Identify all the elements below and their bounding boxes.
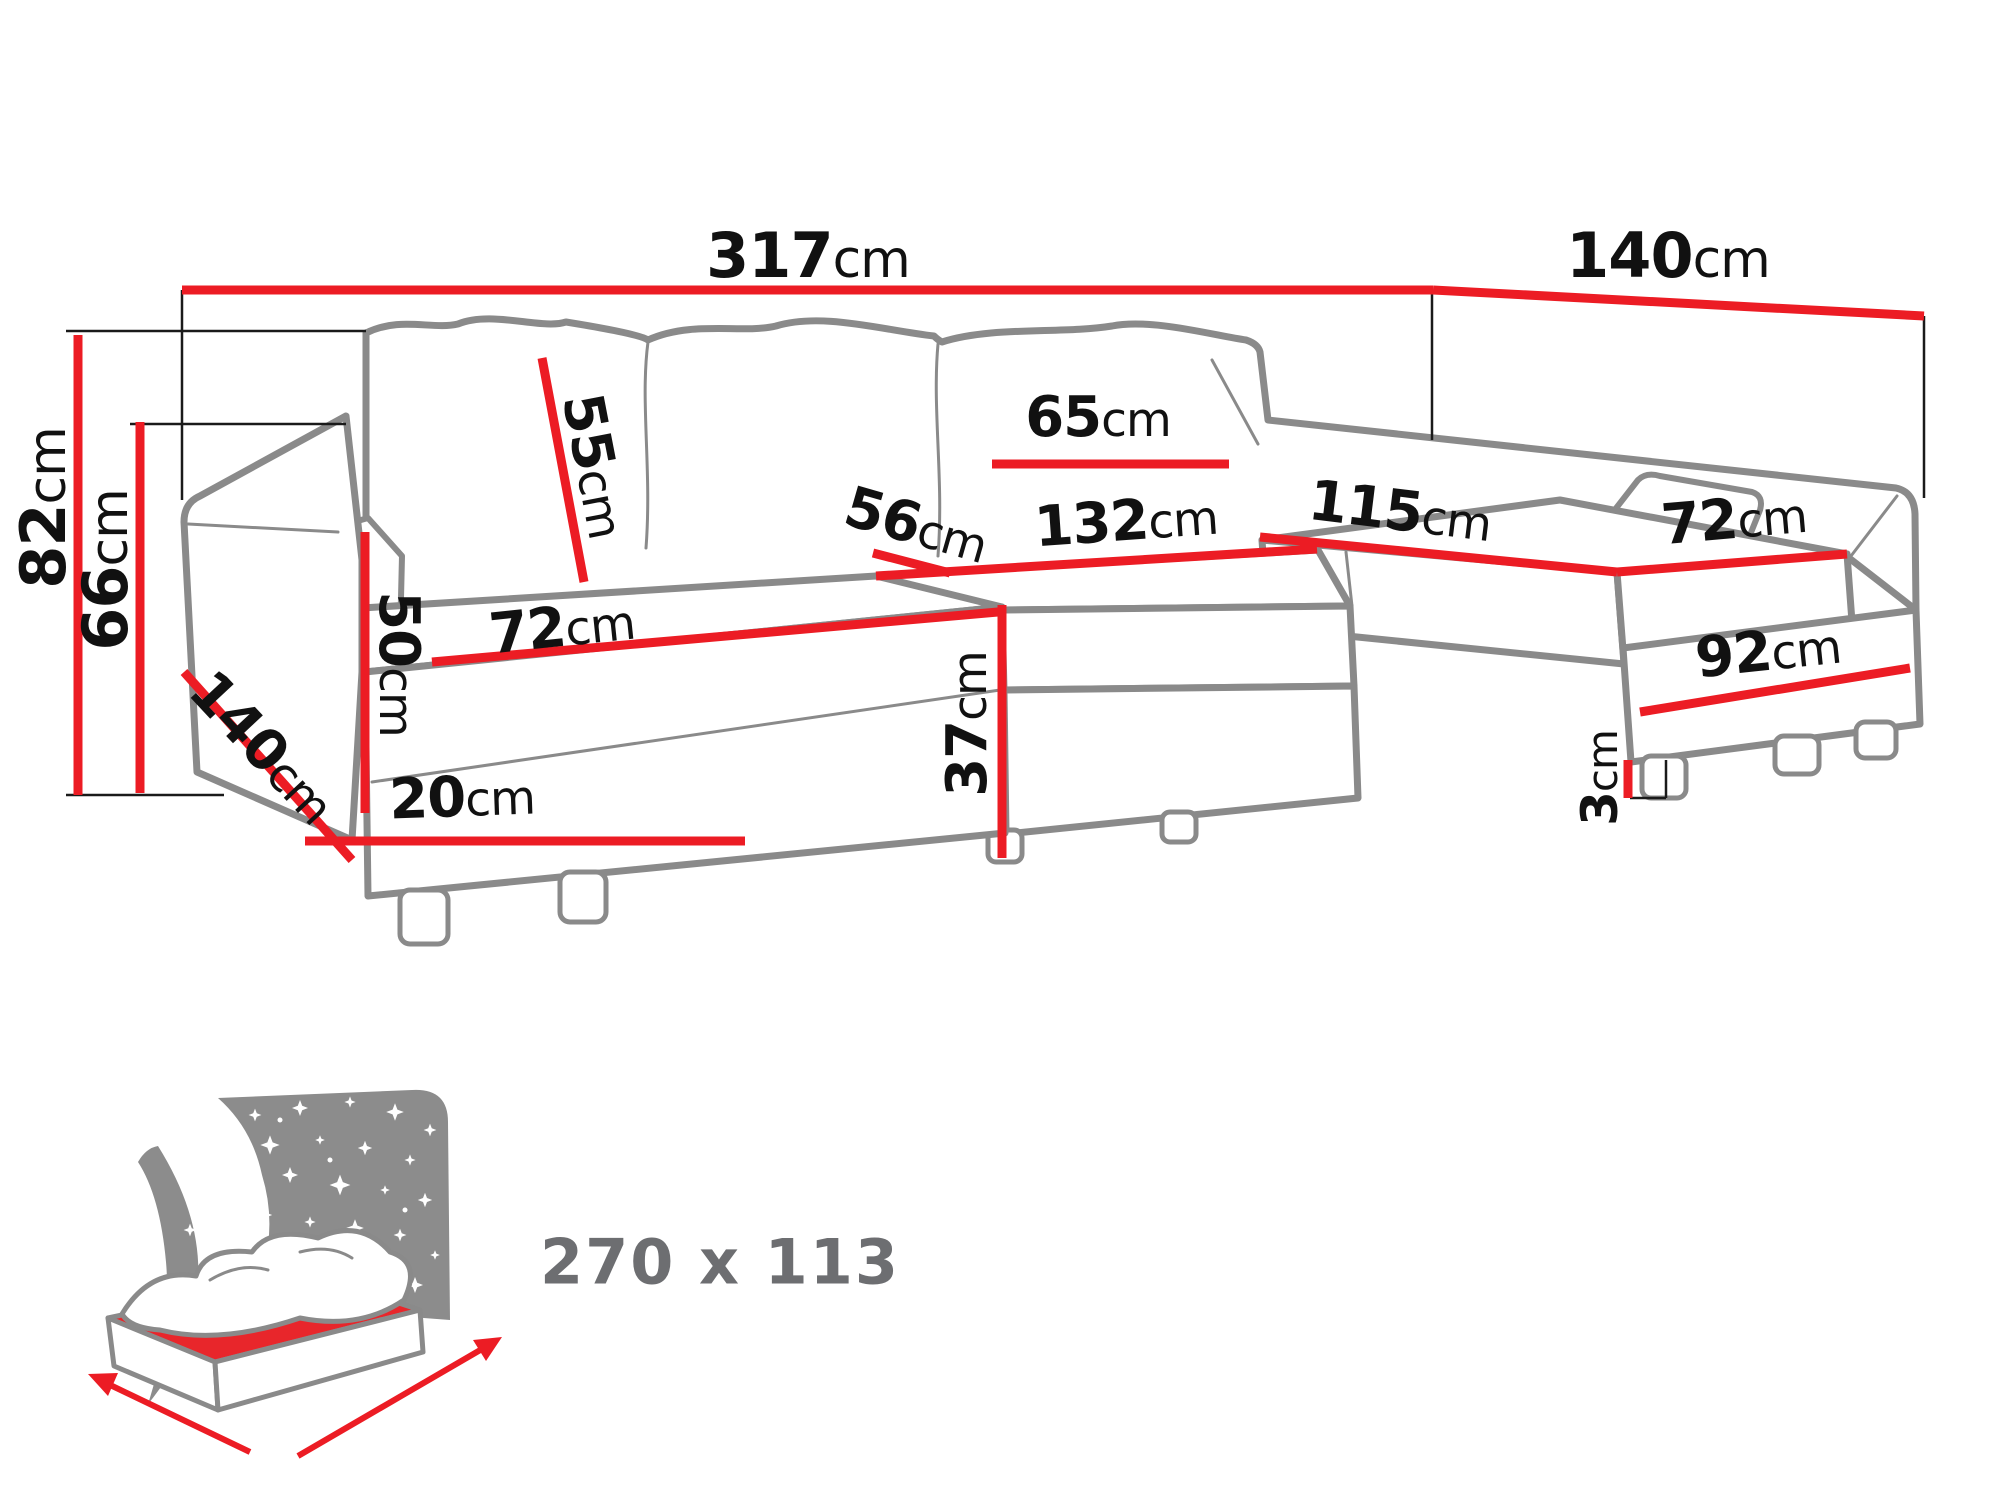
dim-seat-height: 37cm (940, 651, 996, 797)
dim-overall-height: 82cm (13, 427, 75, 589)
dim-unit: cm (833, 230, 910, 290)
dim-unit: cm (563, 596, 638, 658)
dim-value: 50 (366, 591, 431, 667)
sleeping-area-size: 270 x 113 (540, 1226, 900, 1299)
sofa-leg (1775, 736, 1819, 774)
dim-unit: cm (565, 464, 632, 543)
dim-unit: cm (18, 427, 78, 504)
dim-unit: cm (943, 651, 998, 721)
dim-value: 37 (935, 721, 1000, 797)
dim-unit: cm (1693, 230, 1770, 290)
sofa-leg (1162, 812, 1196, 842)
sofa-leg (560, 872, 606, 922)
sofa-leg (1856, 722, 1896, 758)
dim-cushion-width: 65cm (1025, 390, 1171, 446)
dim-unit: cm (368, 667, 423, 737)
dim-unit: cm (1146, 491, 1219, 551)
dim-line-right-depth (1433, 290, 1924, 316)
dim-value: 92 (1692, 619, 1774, 692)
sofa-leg (400, 890, 448, 944)
middle-seat-front (1002, 606, 1354, 690)
dim-unit: cm (1418, 490, 1494, 553)
dim-value: 317 (706, 219, 832, 292)
mattress (108, 1231, 423, 1410)
dim-value: 3 (1571, 792, 1629, 826)
dim-unit: cm (1101, 393, 1171, 448)
dimension-diagram: 317cm 140cm 82cm 66cm 55cm 65cm 56cm 132… (0, 0, 2000, 1500)
dim-middle-seat-width: 132cm (1033, 488, 1220, 557)
dim-unit: cm (464, 770, 536, 827)
dim-left-arm-panel: 50cm (370, 591, 426, 737)
dim-value: 72 (1659, 487, 1740, 558)
dim-value: 20 (388, 765, 466, 833)
dim-right-depth: 140cm (1566, 225, 1770, 287)
dim-value: 115 (1305, 468, 1426, 546)
dim-unit: cm (80, 489, 140, 566)
dim-value: 140 (1566, 219, 1692, 292)
dim-value: 65 (1025, 385, 1101, 450)
dim-right-chaise-width: 72cm (1659, 486, 1809, 554)
dim-leg-height: 3cm (1575, 730, 1625, 826)
sofa-leg (1642, 756, 1686, 798)
dim-arm-height: 66cm (75, 489, 137, 651)
dim-unit: cm (1769, 620, 1844, 682)
dim-value: 132 (1032, 488, 1150, 561)
dim-value: 66 (69, 566, 142, 650)
dim-unit: cm (1735, 489, 1809, 550)
dim-unit: cm (1578, 730, 1627, 792)
dim-total-width: 317cm (706, 225, 910, 287)
dim-base-height: 20cm (388, 767, 535, 828)
dim-value: 72 (486, 595, 568, 668)
